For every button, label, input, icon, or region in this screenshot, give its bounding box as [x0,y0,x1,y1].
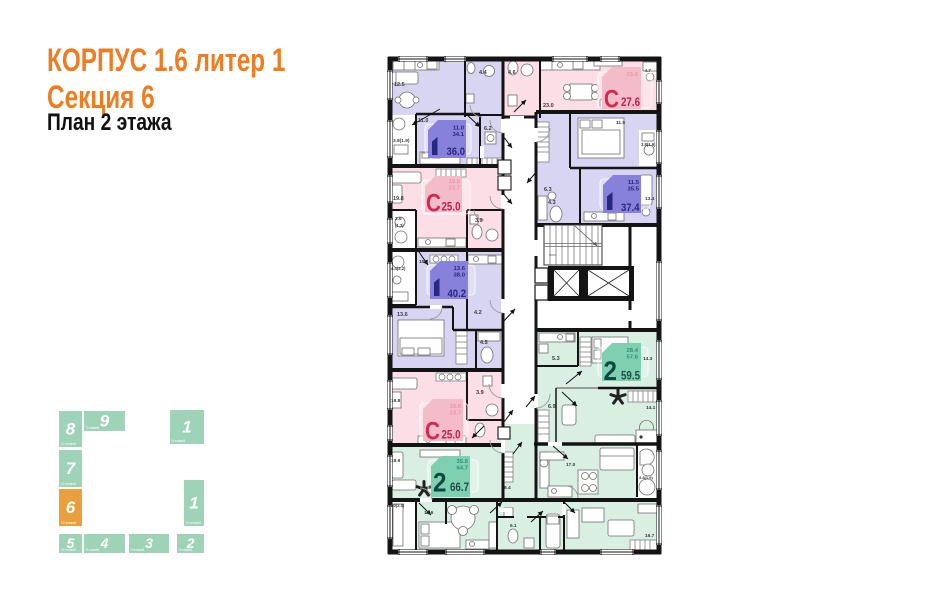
svg-text:6: 6 [66,498,76,517]
svg-text:19.8: 19.8 [391,398,401,404]
svg-text:57.6: 57.6 [627,355,639,361]
svg-text:25.0: 25.0 [442,200,461,214]
svg-text:36.0: 36.0 [447,146,466,158]
svg-text:3.9: 3.9 [475,218,483,224]
svg-text:10 этажей: 10 этажей [186,521,201,525]
svg-text:4.3: 4.3 [548,200,556,206]
svg-text:28.4: 28.4 [627,348,639,354]
svg-text:8: 8 [66,419,76,438]
svg-text:4: 4 [100,535,109,551]
svg-text:С: С [425,418,440,446]
svg-text:11.5: 11.5 [628,180,640,186]
svg-text:11.5: 11.5 [616,120,625,126]
svg-text:35.5: 35.5 [628,187,640,193]
svg-text:4.2: 4.2 [474,310,482,316]
svg-text:14.6: 14.6 [424,510,434,516]
svg-text:5.3: 5.3 [552,356,560,362]
svg-text:23.7: 23.7 [450,411,462,417]
svg-text:17.0: 17.0 [566,462,576,468]
svg-text:3.8(1.9): 3.8(1.9) [641,142,656,147]
svg-text:3.8(1.9): 3.8(1.9) [639,475,653,480]
svg-text:6.3: 6.3 [544,187,552,193]
svg-text:4.5: 4.5 [480,340,488,346]
svg-text:1: 1 [189,493,198,512]
svg-text:10 этажей: 10 этажей [61,521,76,525]
svg-text:10 этажей: 10 этажей [61,442,76,446]
svg-text:23.0: 23.0 [543,103,554,109]
svg-text:10 этажей: 10 этажей [61,482,76,486]
svg-text:13.4: 13.4 [645,196,655,202]
svg-text:6.1: 6.1 [510,523,517,529]
svg-text:2.6: 2.6 [395,216,402,222]
svg-text:(1.3): (1.3) [395,223,404,228]
svg-text:4.4: 4.4 [479,70,488,76]
svg-text:3.8(1.9): 3.8(1.9) [393,138,410,144]
svg-text:7: 7 [66,459,77,478]
svg-text:40.2: 40.2 [448,288,467,300]
svg-text:25.0: 25.0 [442,428,461,442]
svg-text:15.7: 15.7 [419,259,429,265]
svg-text:8.4: 8.4 [504,485,511,491]
svg-text:11.0: 11.0 [418,118,428,124]
svg-text:18.9: 18.9 [391,458,401,464]
svg-text:2: 2 [604,356,618,386]
svg-text:37.4: 37.4 [621,202,640,214]
svg-text:13.6: 13.6 [454,266,466,272]
svg-text:4.6: 4.6 [508,70,516,76]
svg-text:19.8: 19.8 [393,196,404,202]
svg-text:64.7: 64.7 [457,466,469,472]
svg-text:6.2: 6.2 [484,126,492,132]
svg-text:9 этажей: 9 этажей [86,426,99,430]
svg-text:9 этажей: 9 этажей [172,439,185,443]
svg-text:14.1: 14.1 [646,405,656,411]
svg-text:3: 3 [145,535,153,551]
svg-text:2: 2 [433,468,447,498]
svg-text:59.5: 59.5 [621,369,640,383]
svg-text:27.6: 27.6 [621,95,640,109]
svg-text:4.7: 4.7 [645,68,651,73]
svg-text:13.6: 13.6 [397,312,408,318]
svg-text:66.7: 66.7 [450,480,469,494]
svg-text:9 этажей: 9 этажей [86,548,99,552]
svg-text:4.0(2.0): 4.0(2.0) [390,503,405,508]
svg-text:19.8: 19.8 [450,404,462,410]
svg-text:С: С [426,190,441,218]
svg-text:9: 9 [100,411,110,430]
svg-text:4.4(2.2): 4.4(2.2) [391,266,406,271]
svg-text:12.5: 12.5 [394,82,405,88]
svg-text:С: С [604,86,619,114]
svg-text:23.0: 23.0 [627,72,639,78]
svg-text:3.9: 3.9 [476,390,484,396]
svg-text:11.0: 11.0 [453,126,465,132]
svg-text:35.6: 35.6 [457,459,469,465]
svg-text:38.0: 38.0 [454,273,466,279]
svg-text:6.9: 6.9 [548,404,556,410]
svg-text:14.3: 14.3 [643,356,653,362]
svg-text:34.1: 34.1 [453,132,465,138]
svg-text:23.7: 23.7 [449,186,461,192]
svg-text:9 этажей: 9 этажей [179,548,192,552]
svg-text:9 этажей: 9 этажей [131,548,144,552]
svg-text:10 этажей: 10 этажей [61,548,76,552]
svg-text:1: 1 [182,417,191,436]
svg-text:19.8: 19.8 [449,179,461,185]
svg-text:16.7: 16.7 [645,533,655,539]
